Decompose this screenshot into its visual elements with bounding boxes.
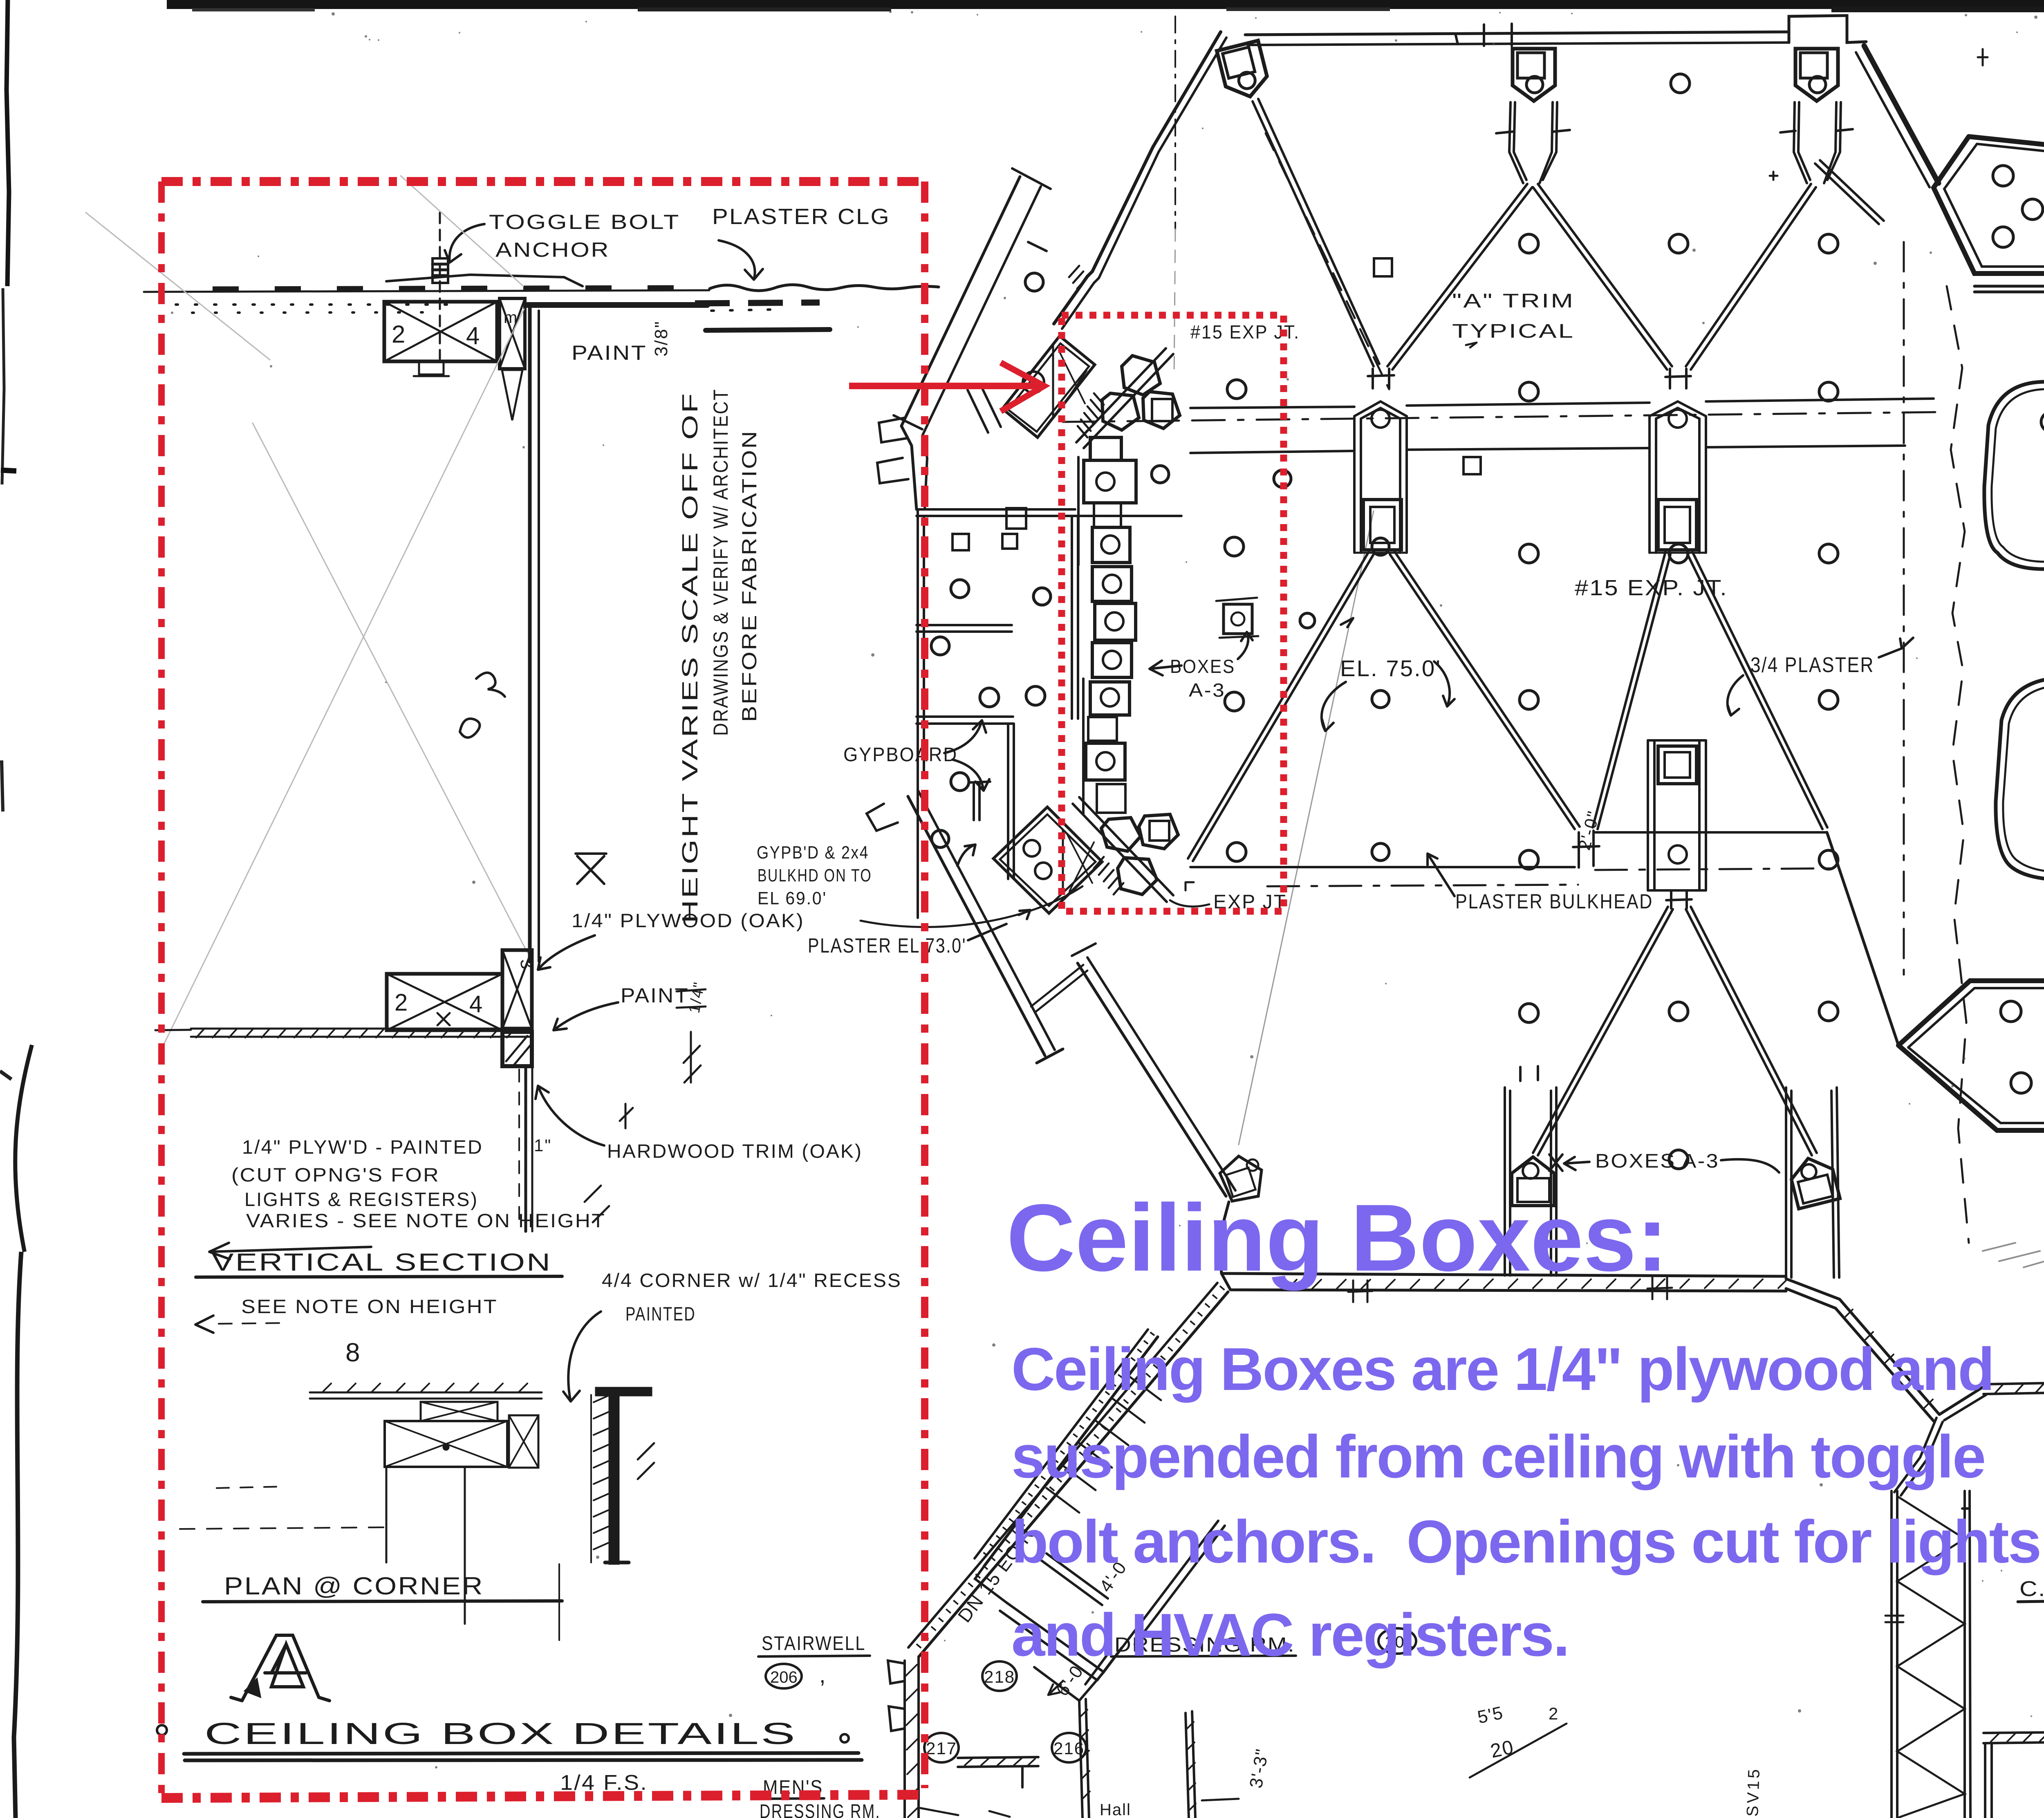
svg-text:216: 216 xyxy=(1053,1739,1085,1758)
svg-text:1": 1" xyxy=(534,1136,552,1155)
svg-text:HEIGHT VARIES SCALE OFF OF: HEIGHT VARIES SCALE OFF OF xyxy=(678,392,702,923)
svg-text:PLASTER EL 73.0': PLASTER EL 73.0' xyxy=(808,934,966,957)
svg-text:BOXES: BOXES xyxy=(1170,656,1235,677)
svg-text:CEILING BOX DETAILS: CEILING BOX DETAILS xyxy=(204,1717,797,1751)
svg-text:GYPBOARD: GYPBOARD xyxy=(843,744,958,766)
svg-text:BULKHD ON TO: BULKHD ON TO xyxy=(758,865,872,885)
svg-text:2: 2 xyxy=(394,989,409,1016)
svg-text:3: 3 xyxy=(516,957,538,972)
svg-text:206: 206 xyxy=(770,1668,798,1686)
svg-text:1/4" PLYWOOD (OAK): 1/4" PLYWOOD (OAK) xyxy=(572,910,805,931)
svg-text:A-3: A-3 xyxy=(1189,679,1226,701)
svg-text:bolt anchors. Openings cut fo: bolt anchors. Openings cut for lights xyxy=(1011,1508,2040,1576)
svg-text:20: 20 xyxy=(1488,1736,1516,1762)
svg-text:PLASTER CLG: PLASTER CLG xyxy=(712,204,890,229)
svg-text:1/4" PLYW'D - PAINTED: 1/4" PLYW'D - PAINTED xyxy=(242,1136,483,1158)
svg-text:2: 2 xyxy=(392,321,406,348)
svg-text:suspended from ceiling with to: suspended from ceiling with toggle xyxy=(1011,1423,1985,1491)
svg-text:VARIES - SEE NOTE ON HEIGHT: VARIES - SEE NOTE ON HEIGHT xyxy=(246,1210,606,1231)
svg-text:2: 2 xyxy=(1549,1704,1559,1723)
svg-text:DRAWINGS & VERIFY W/ ARCHITECT: DRAWINGS & VERIFY W/ ARCHITECT xyxy=(709,388,732,736)
svg-text:SEE NOTE ON HEIGHT: SEE NOTE ON HEIGHT xyxy=(241,1296,498,1317)
svg-text:EL. 75.0': EL. 75.0' xyxy=(1340,655,1441,681)
svg-text:C.R.: C.R. xyxy=(2019,1577,2044,1601)
svg-text:217: 217 xyxy=(926,1739,957,1758)
svg-text:Hall: Hall xyxy=(1100,1801,1131,1818)
svg-text:BEFORE FABRICATION: BEFORE FABRICATION xyxy=(738,430,761,722)
svg-text:PAINTED: PAINTED xyxy=(625,1303,696,1325)
svg-text:LIGHTS & REGISTERS): LIGHTS & REGISTERS) xyxy=(244,1188,478,1210)
svg-text:VERTICAL SECTION: VERTICAL SECTION xyxy=(212,1249,552,1276)
svg-text:3'-3": 3'-3" xyxy=(1246,1747,1273,1790)
svg-text:3/4 PLASTER: 3/4 PLASTER xyxy=(1750,653,1874,677)
svg-text:PAINT: PAINT xyxy=(621,984,689,1007)
svg-text:TOGGLE BOLT: TOGGLE BOLT xyxy=(489,211,680,233)
svg-text:Ceiling Boxes:: Ceiling Boxes: xyxy=(1006,1185,1668,1291)
svg-text:,: , xyxy=(819,1662,827,1688)
svg-text:STAIRWELL: STAIRWELL xyxy=(762,1633,866,1654)
svg-text:and HVAC registers.: and HVAC registers. xyxy=(1011,1601,1569,1669)
svg-text:15X18: 15X18 xyxy=(2042,1776,2044,1811)
svg-text:PLAN @ CORNER: PLAN @ CORNER xyxy=(224,1572,484,1600)
svg-text:GYPB'D & 2x4: GYPB'D & 2x4 xyxy=(757,843,869,863)
svg-text:#15 EXP. JT.: #15 EXP. JT. xyxy=(1575,576,1728,600)
svg-text:3/8": 3/8" xyxy=(651,320,671,356)
svg-text:PLASTER BULKHEAD: PLASTER BULKHEAD xyxy=(1455,890,1653,913)
svg-text:SV15: SV15 xyxy=(1744,1766,1763,1817)
svg-text:218: 218 xyxy=(984,1667,1015,1686)
svg-text:4: 4 xyxy=(469,991,484,1018)
svg-text:8: 8 xyxy=(345,1338,361,1367)
svg-text:ANCHOR: ANCHOR xyxy=(495,238,610,261)
svg-text:4: 4 xyxy=(466,322,481,350)
svg-text:DRESSING RM.: DRESSING RM. xyxy=(760,1801,881,1818)
svg-text:m: m xyxy=(504,309,518,327)
svg-text:TYPICAL: TYPICAL xyxy=(1452,321,1575,342)
svg-text:(CUT OPNG'S FOR: (CUT OPNG'S FOR xyxy=(231,1164,440,1186)
svg-text:HARDWOOD TRIM (OAK): HARDWOOD TRIM (OAK) xyxy=(607,1140,863,1162)
svg-text:5'5: 5'5 xyxy=(1476,1703,1505,1728)
svg-text:BOXES A-3: BOXES A-3 xyxy=(1595,1150,1719,1172)
svg-text:Ceiling Boxes are 1/4" plywood: Ceiling Boxes are 1/4" plywood and xyxy=(1011,1336,1994,1403)
svg-text:EL 69.0': EL 69.0' xyxy=(758,888,827,908)
svg-text:"A" TRIM: "A" TRIM xyxy=(1452,290,1575,312)
svg-text:PAINT: PAINT xyxy=(572,341,647,364)
svg-text:4/4 CORNER w/ 1/4" RECESS: 4/4 CORNER w/ 1/4" RECESS xyxy=(602,1269,902,1291)
